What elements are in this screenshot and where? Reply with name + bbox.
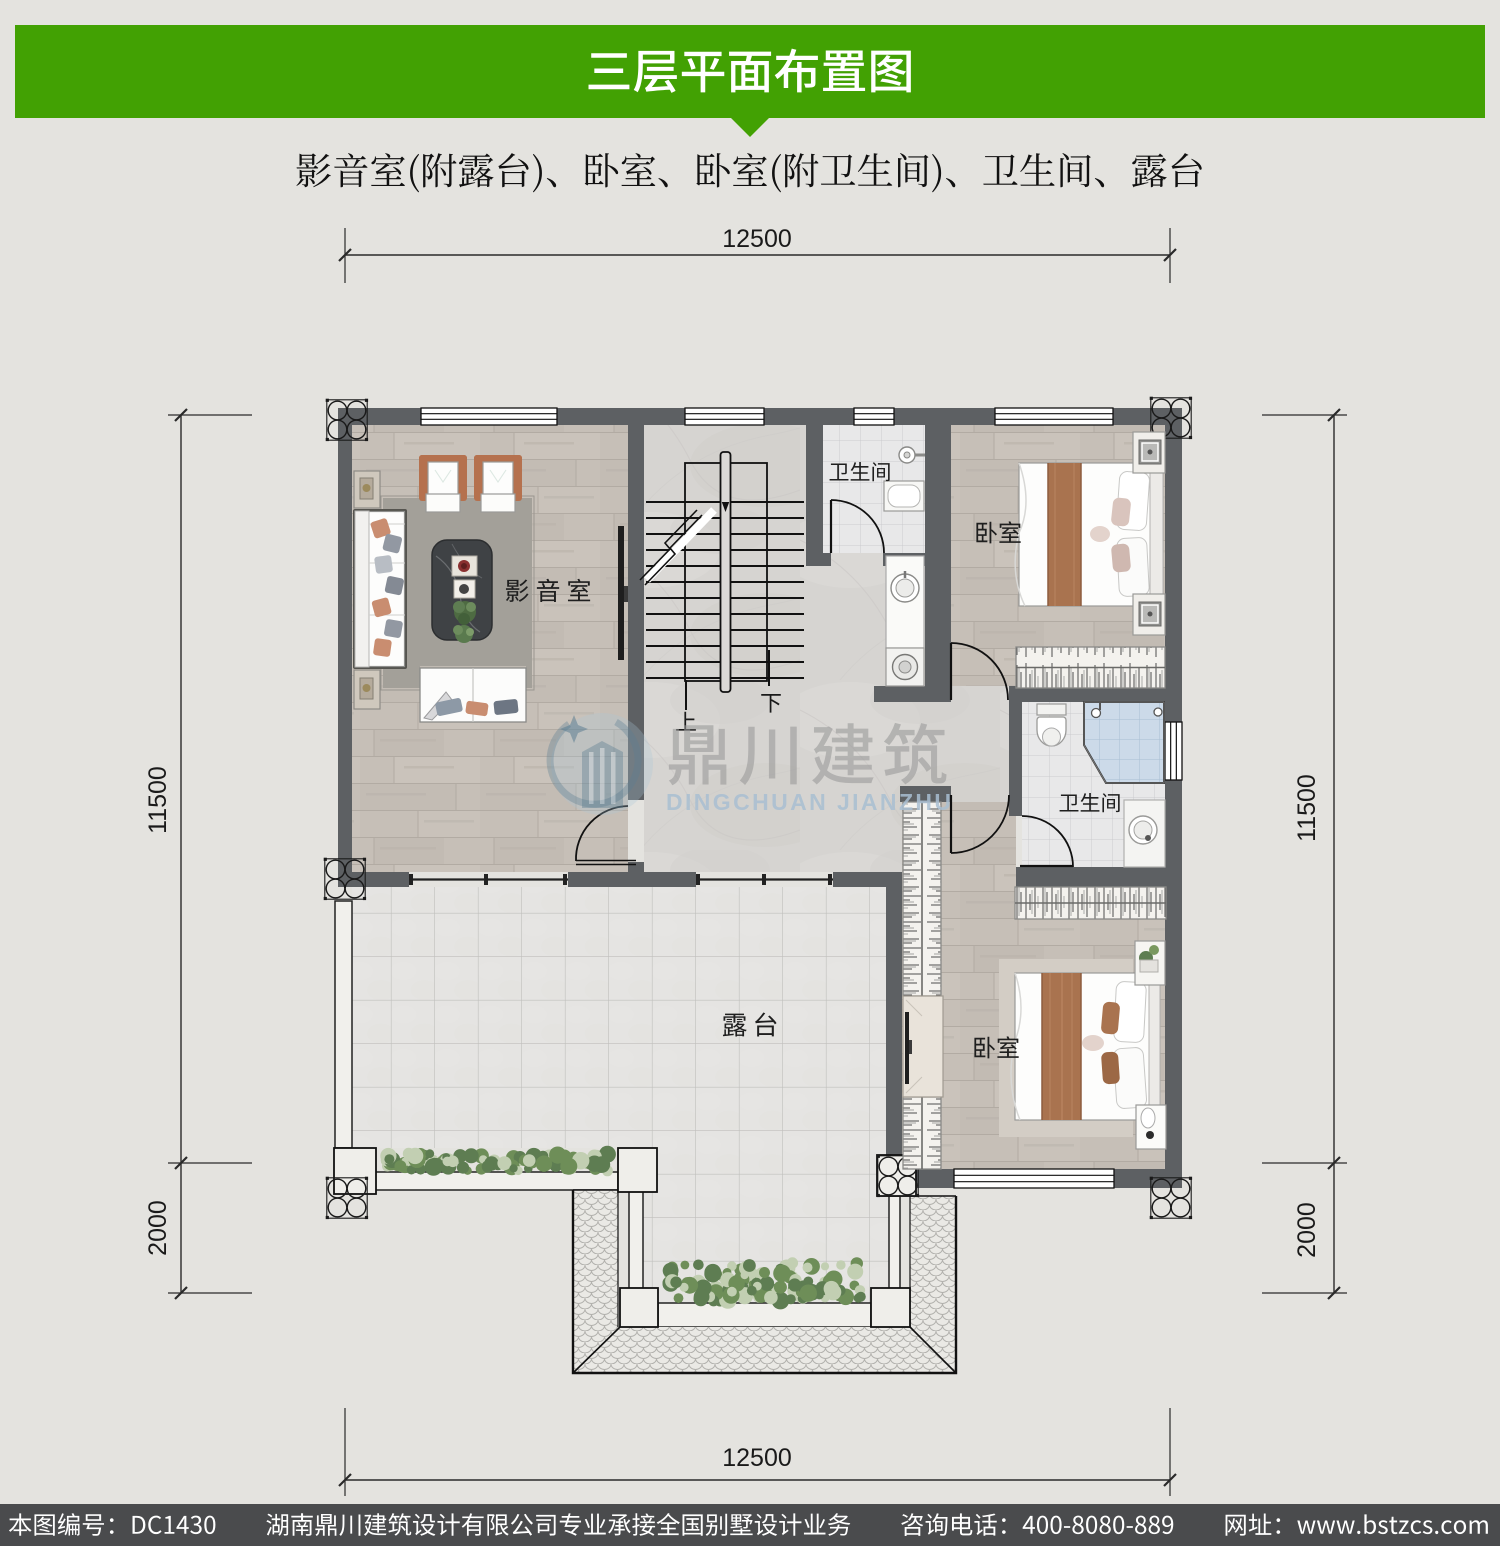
svg-text:2000: 2000 xyxy=(1293,1202,1321,1258)
svg-text:12500: 12500 xyxy=(722,1444,792,1472)
svg-text:11500: 11500 xyxy=(144,766,172,834)
svg-text:12500: 12500 xyxy=(722,225,792,253)
svg-text:DINGCHUAN JIANZHU: DINGCHUAN JIANZHU xyxy=(666,789,953,815)
svg-text:11500: 11500 xyxy=(1293,774,1321,842)
svg-text:2000: 2000 xyxy=(144,1200,172,1256)
